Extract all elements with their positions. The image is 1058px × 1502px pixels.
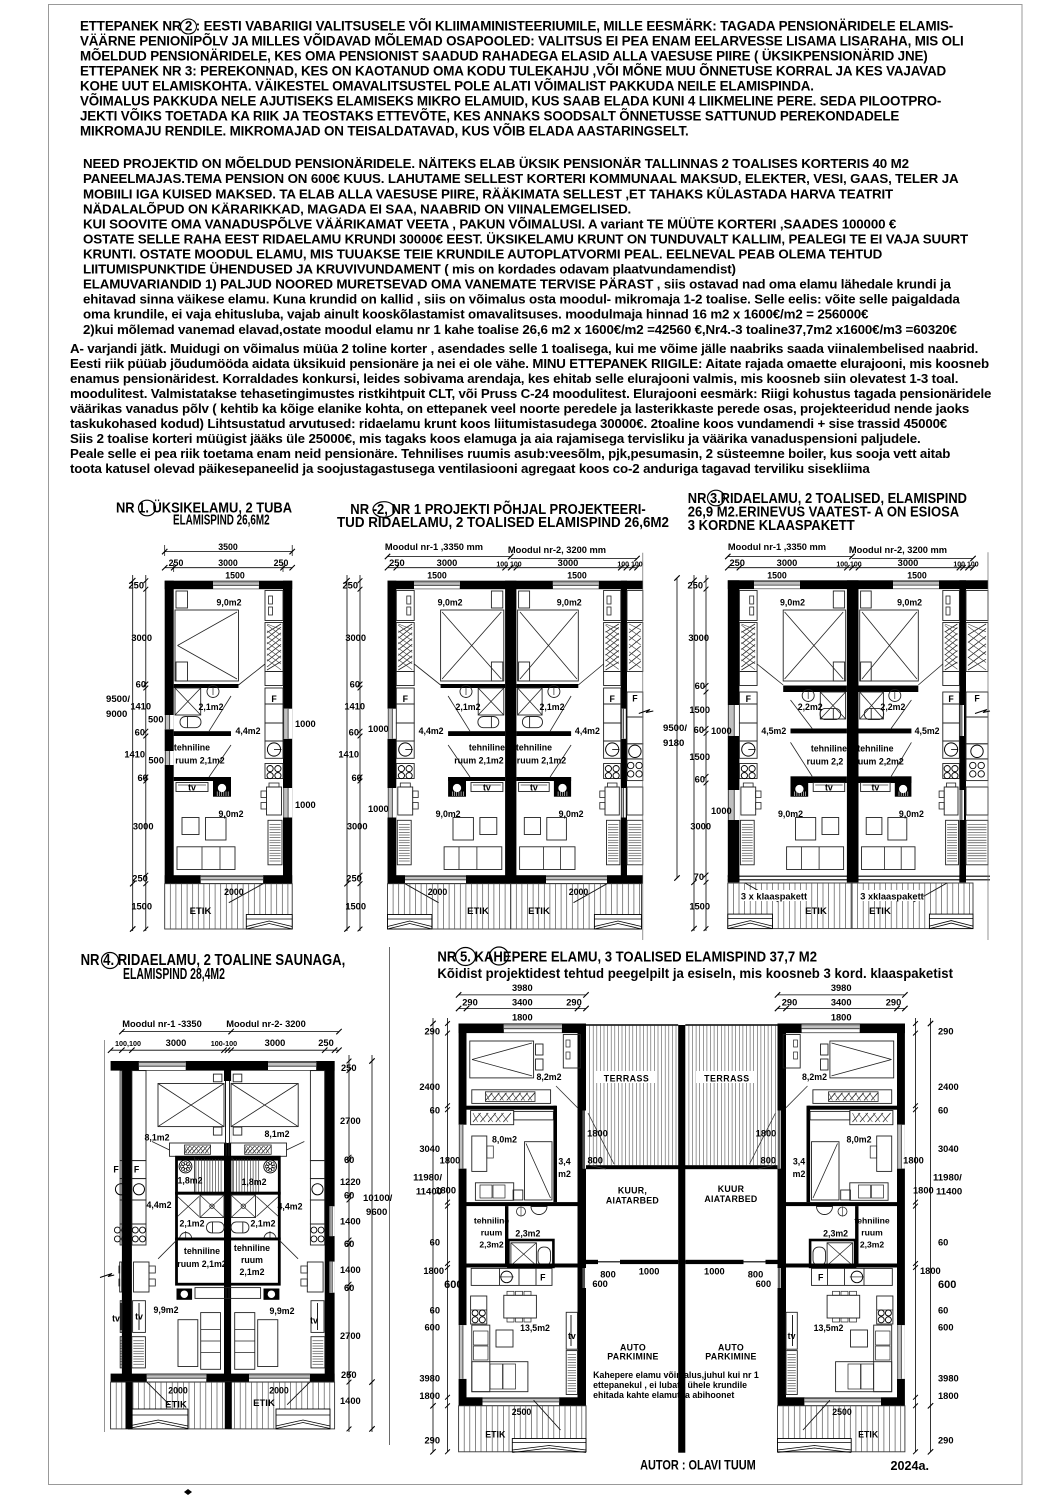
svg-text:1000: 1000 [639,1266,660,1276]
svg-text:1500: 1500 [767,570,787,580]
svg-text:100-100: 100-100 [211,1039,237,1048]
svg-text:3980: 3980 [831,983,852,993]
svg-text:1000: 1000 [368,804,389,814]
svg-text:8,2m2: 8,2m2 [802,1072,827,1082]
svg-text:ETTEPANEK NR 2 : EESTI VABARII: ETTEPANEK NR 2 : EESTI VABARIIGI VALITSU… [80,19,953,34]
svg-text:1410: 1410 [338,750,359,760]
svg-text:8,0m2: 8,0m2 [492,1135,517,1145]
svg-text:250: 250 [687,581,703,591]
svg-text:F: F [113,1164,119,1174]
svg-text:9500/: 9500/ [663,723,687,734]
svg-text:2,1m2: 2,1m2 [180,1219,205,1229]
svg-text:1400: 1400 [340,1265,361,1275]
svg-text:1500: 1500 [567,570,587,580]
svg-text:KRUNTI. OSTATE MOODUL ELAMU,: KRUNTI. OSTATE MOODUL ELAMU, MIS TUUAKSE… [83,247,883,262]
svg-text:2,3m2: 2,3m2 [515,1229,540,1239]
svg-text:600: 600 [444,1279,462,1291]
svg-text:500: 500 [148,756,164,766]
svg-text:Eesti riik püüab jõudumööda ai: Eesti riik püüab jõudumööda aidata üksik… [70,356,989,371]
svg-text:1410: 1410 [344,702,365,712]
svg-text:Moodul nr-1 ,3350 mm: Moodul nr-1 ,3350 mm [385,542,483,552]
svg-text:PARKIMINE: PARKIMINE [705,1352,756,1362]
svg-text:TERRASS: TERRASS [704,1074,750,1084]
svg-text:13,5m2: 13,5m2 [814,1323,844,1333]
svg-text:NÄDALALÕPUD ON KÄRARIKKAD, MAG: NÄDALALÕPUD ON KÄRARIKKAD, MAGADA EI SAA… [83,201,631,216]
svg-text:250: 250 [346,874,362,884]
svg-text:4,4m2: 4,4m2 [236,726,261,736]
svg-text:1000: 1000 [368,724,389,734]
svg-text:250: 250 [341,1370,357,1380]
svg-text:3400: 3400 [831,997,852,1007]
svg-text:1500: 1500 [689,902,710,912]
svg-text:F: F [134,1164,140,1174]
svg-text:4,4m2: 4,4m2 [147,1200,172,1210]
svg-text:MÕELDUD PENSIONÄRIDELE, KES OM: MÕELDUD PENSIONÄRIDELE, KES OMA PENSIONI… [80,49,928,64]
svg-text:tv: tv [568,1331,576,1341]
svg-text:2,1m2: 2,1m2 [540,702,565,712]
svg-text:2,1m2: 2,1m2 [456,702,481,712]
svg-text:tv: tv [188,783,196,793]
svg-text:m2: m2 [558,1169,571,1179]
svg-text:TERRASS: TERRASS [604,1074,650,1084]
svg-text:1000: 1000 [295,800,316,810]
svg-text:3,4: 3,4 [558,1157,570,1167]
svg-text:600: 600 [756,1279,772,1289]
svg-text:8,0m2: 8,0m2 [847,1135,872,1145]
svg-text:10100/: 10100/ [363,1193,393,1204]
svg-text:8,1m2: 8,1m2 [145,1132,170,1142]
svg-text:1400: 1400 [340,1396,361,1406]
svg-text:2000: 2000 [428,887,448,897]
svg-text:9,9m2: 9,9m2 [154,1305,179,1315]
svg-text:3 xklaaspakett: 3 xklaaspakett [860,892,924,902]
svg-text:2500: 2500 [832,1407,852,1417]
svg-text:500: 500 [148,715,164,725]
svg-text:m2: m2 [793,1169,806,1179]
svg-text:800: 800 [761,1155,777,1165]
svg-text:3000: 3000 [688,633,709,643]
svg-text:3980: 3980 [938,1374,959,1384]
svg-text:tv: tv [871,783,879,793]
svg-text:11980/: 11980/ [413,1172,442,1183]
svg-text:250: 250 [318,1038,334,1048]
svg-text:60: 60 [351,773,361,783]
svg-text:Kõidist projektidest tehtud pe: Kõidist projektidest tehtud peegelpilt j… [437,966,953,982]
svg-text:1800: 1800 [419,1391,440,1401]
svg-text:3980: 3980 [419,1374,440,1384]
svg-text:250: 250 [169,558,184,568]
svg-text:60: 60 [344,1283,354,1293]
svg-text:ELAMISPIND 26,6M2: ELAMISPIND 26,6M2 [173,511,270,528]
svg-text:60: 60 [135,728,145,738]
svg-text:2,3m2: 2,3m2 [823,1229,848,1239]
svg-text:250: 250 [341,1063,357,1073]
svg-text:ruum 2,1m2: ruum 2,1m2 [517,756,566,766]
svg-text:tehniline: tehniline [469,743,505,753]
svg-text:KUUR: KUUR [718,1184,745,1194]
svg-text:1800: 1800 [440,1155,461,1165]
svg-text:1500: 1500 [345,902,366,912]
svg-text:3000: 3000 [777,558,798,568]
svg-text:AIATARBED: AIATARBED [704,1194,757,1204]
svg-text:4,4m2: 4,4m2 [419,726,444,736]
svg-text:1800: 1800 [587,1129,608,1139]
svg-text:F: F [948,694,954,704]
svg-text:ruum: ruum [861,1227,883,1237]
svg-text:60: 60 [695,775,705,785]
svg-text:60: 60 [344,1155,354,1165]
svg-text:3000: 3000 [347,822,368,832]
svg-text:4,4m2: 4,4m2 [278,1202,303,1212]
svg-text:2,1m2: 2,1m2 [251,1219,276,1229]
svg-text:3000: 3000 [218,558,238,568]
svg-text:1,8m2: 1,8m2 [178,1176,203,1186]
svg-text:F: F [632,694,638,704]
svg-text:tehniline: tehniline [811,744,847,754]
svg-text:1800: 1800 [423,1266,444,1276]
svg-text:taskukohased kodud) Lihtsustat: taskukohased kodud) Lihtsustatud arvutus… [70,416,948,431]
svg-text:tehniline: tehniline [474,1215,510,1225]
svg-text:JEKTI VÕIKS TOETADA KA RIIK JA: JEKTI VÕIKS TOETADA KA RIIK JA TEOSTAKS … [80,109,899,124]
svg-text:4,5m2: 4,5m2 [915,726,940,736]
svg-text:Siis 2 toalise korteri müügist: Siis 2 toalise korteri müügist jääks üle… [70,431,921,446]
svg-text:3000: 3000 [133,822,154,832]
svg-text:ETIK: ETIK [165,1400,187,1411]
svg-text:Moodul nr-2, 3200 mm: Moodul nr-2, 3200 mm [849,545,947,555]
svg-text:60: 60 [695,681,705,691]
svg-text:100 100: 100 100 [496,562,521,569]
svg-text:1000: 1000 [295,719,316,729]
svg-text:290: 290 [424,1436,440,1446]
svg-text:2,2m2: 2,2m2 [798,702,823,712]
svg-text:250: 250 [342,581,358,591]
svg-text:800: 800 [587,1155,603,1165]
svg-text:290: 290 [938,1027,954,1037]
svg-text:ETIK: ETIK [869,906,891,917]
svg-text:1410: 1410 [124,750,145,760]
svg-text:290: 290 [462,997,478,1007]
svg-text:KUI SOOVITE OMA VANADUSPÕLVE: KUI SOOVITE OMA VANADUSPÕLVE VÄÄRIKAMAT … [83,216,897,231]
svg-text:9,0m2: 9,0m2 [778,809,803,819]
svg-text:MOBIILI IGA KUISED MAKSED. TA: MOBIILI IGA KUISED MAKSED. TA ELAB ALLA … [83,186,893,201]
svg-text:4,5m2: 4,5m2 [761,726,786,736]
svg-text:13,5m2: 13,5m2 [520,1323,550,1333]
svg-text:moodulitest. Valmistatakse teh: moodulitest. Valmistatakse tehasetingimu… [70,386,991,401]
svg-text:ETIK: ETIK [485,1430,506,1440]
svg-text:KOHE UUT ELAMISKOHTA. VÄIKESTE: KOHE UUT ELAMISKOHTA. VÄIKESTEL OMAVALIT… [80,79,814,94]
svg-text:tehniline: tehniline [854,1215,890,1225]
svg-text:8,1m2: 8,1m2 [265,1129,290,1139]
svg-text:ETIK: ETIK [858,1430,879,1440]
svg-text:väärikas vanadus põlv ( kehtib: väärikas vanadus põlv ( kehtib ka kõige … [70,401,969,416]
svg-text:9,9m2: 9,9m2 [270,1306,295,1316]
svg-text:2000: 2000 [569,887,589,897]
svg-text:1800: 1800 [938,1391,959,1401]
svg-text:60: 60 [344,1191,354,1201]
svg-text:60: 60 [430,1238,440,1248]
svg-text:9,0m2: 9,0m2 [780,598,805,608]
svg-text:60: 60 [938,1306,948,1316]
svg-text:3040: 3040 [938,1144,959,1154]
svg-text:60: 60 [430,1106,440,1116]
svg-text:9600: 9600 [366,1207,387,1218]
svg-text:3 KORDNE KLAASPAKETT: 3 KORDNE KLAASPAKETT [688,517,856,534]
svg-text:ruum 2,2: ruum 2,2 [807,757,844,767]
svg-text:Moodul nr-2, 3200 mm: Moodul nr-2, 3200 mm [508,545,606,555]
svg-text:60: 60 [136,680,146,690]
svg-text:Kahepere elamu võimalus,juhul: Kahepere elamu võimalus,juhul kui nr 1 [593,1370,759,1380]
svg-text:3000: 3000 [898,558,919,568]
svg-text:ruum 2,1m2: ruum 2,1m2 [177,1259,226,1269]
svg-text:F: F [974,694,980,704]
svg-text:2400: 2400 [938,1082,959,1092]
svg-text:tehniline: tehniline [516,743,552,753]
svg-text:ruum 2,2m2: ruum 2,2m2 [854,757,903,767]
svg-text:ehitada kahte elamut ja abihoo: ehitada kahte elamut ja abihoonet [593,1390,734,1400]
svg-text:600: 600 [938,1323,954,1333]
svg-text:3 x klaaspakett: 3 x klaaspakett [741,892,807,902]
svg-text:F: F [610,694,616,704]
svg-text:1800: 1800 [903,1155,924,1165]
svg-text:oma krundile, ei vaja ehituslu: oma krundile, ei vaja ehitusluba, vajab … [83,307,869,322]
svg-text:A- varjandi jätk. Muidugi on v: A- varjandi jätk. Muidugi on võimalus mü… [70,341,978,356]
svg-text:F: F [271,694,277,704]
svg-text:600: 600 [592,1279,608,1289]
svg-text:tv: tv [310,1316,318,1326]
svg-text:60: 60 [694,725,704,735]
svg-text:ELAMUVARIANDID 1) PALJUD NO: ELAMUVARIANDID 1) PALJUD NOORED MURETSEV… [83,277,952,292]
svg-text:3400: 3400 [512,997,533,1007]
svg-text:AIATARBED: AIATARBED [606,1196,659,1206]
svg-text:11400: 11400 [936,1186,962,1197]
svg-text:tv: tv [135,1312,143,1322]
svg-text:F: F [746,694,752,704]
svg-text:800: 800 [748,1269,764,1279]
svg-text:60: 60 [349,728,359,738]
svg-text:1220: 1220 [340,1177,361,1187]
svg-text:60: 60 [137,773,147,783]
svg-text:1410: 1410 [130,702,151,712]
svg-text:250: 250 [128,581,144,591]
svg-text:ruum 2,1m2: ruum 2,1m2 [454,756,503,766]
svg-text:70: 70 [694,872,704,882]
svg-text:tv: tv [530,783,538,793]
svg-text:60: 60 [430,1306,440,1316]
svg-text:tehniline: tehniline [174,743,210,753]
svg-text:8,2m2: 8,2m2 [537,1072,562,1082]
svg-text:ettepanekul , ei lubata ühele: ettepanekul , ei lubata ühele krundile [593,1380,747,1390]
svg-text:2500: 2500 [512,1407,532,1417]
svg-text:2400: 2400 [419,1082,440,1092]
svg-text:290: 290 [782,997,798,1007]
svg-text:9,0m2: 9,0m2 [899,809,924,819]
svg-text:3,4: 3,4 [793,1157,805,1167]
svg-text:1000: 1000 [711,726,732,736]
svg-text:1,8m2: 1,8m2 [242,1177,267,1187]
svg-text:9500/: 9500/ [106,694,130,705]
svg-text:2,2m2: 2,2m2 [880,702,905,712]
svg-text:PARKIMINE: PARKIMINE [607,1352,658,1362]
svg-text:Moodul nr-2- 3200: Moodul nr-2- 3200 [226,1019,306,1029]
svg-text:250: 250 [132,874,148,884]
svg-text:1500: 1500 [907,570,927,580]
svg-text:9,0m2: 9,0m2 [557,598,582,608]
svg-text:Peale selle ei pea riik toetam: Peale selle ei pea riik toetama enam nei… [70,446,950,461]
svg-text:3980: 3980 [512,983,533,993]
svg-text:tv: tv [788,1331,796,1341]
svg-text:3000: 3000 [690,822,711,832]
svg-text:tehniline: tehniline [234,1243,270,1253]
svg-text:800: 800 [600,1269,616,1279]
svg-text:1000: 1000 [711,806,732,816]
svg-text:ETTEPANEK NR 3: PEREKONNAD, KE: ETTEPANEK NR 3: PEREKONNAD, KES ON KAOTA… [80,64,947,79]
svg-text:1800: 1800 [920,1266,941,1276]
svg-text:100 100: 100 100 [617,562,642,569]
svg-text:2700: 2700 [340,1116,361,1126]
svg-text:3000: 3000 [131,633,152,643]
svg-text:ETIK: ETIK [253,1398,275,1409]
svg-text:3000: 3000 [345,633,366,643]
svg-text:3000: 3000 [437,558,458,568]
svg-text:ETIK: ETIK [805,906,827,917]
svg-text:ETIK: ETIK [528,906,550,917]
svg-text:250: 250 [274,558,289,568]
svg-text:9180: 9180 [663,738,684,749]
svg-text:100 100: 100 100 [836,562,861,569]
svg-text:2)kui mõlemad vanemad elavad,o: 2)kui mõlemad vanemad elavad,ostate mood… [83,322,958,337]
svg-text:9,0m2: 9,0m2 [438,598,463,608]
svg-text:AUTOR : OLAVI TUUM: AUTOR : OLAVI TUUM [640,1457,756,1473]
svg-text:1000: 1000 [704,1266,725,1276]
svg-text:3000: 3000 [166,1038,187,1048]
svg-text:1500: 1500 [689,705,710,715]
svg-text:100,100: 100,100 [115,1039,141,1048]
svg-text:9,0m2: 9,0m2 [559,809,584,819]
svg-text:9000: 9000 [106,709,127,720]
svg-text:2,1m2: 2,1m2 [199,702,224,712]
svg-text:1500: 1500 [225,570,245,580]
svg-text:600: 600 [424,1323,440,1333]
svg-text:LIITUMISPUNKTIDE ÜHENDUSED JA: LIITUMISPUNKTIDE ÜHENDUSED JA KRUVIVUNDA… [83,262,736,277]
svg-text:PANEELMAJAS.TEMA PENSION ON 60: PANEELMAJAS.TEMA PENSION ON 600€ KUUS. L… [83,171,959,186]
svg-text:1500: 1500 [131,902,152,912]
svg-text:2,1m2: 2,1m2 [240,1267,265,1277]
svg-text:ruum: ruum [481,1227,503,1237]
svg-text:1500: 1500 [689,752,710,762]
svg-text:VÄÄRNE PENIONIPÕLV JA MILLES V: VÄÄRNE PENIONIPÕLV JA MILLES VÕIDAVAD MÕ… [80,34,964,49]
svg-text:3500: 3500 [218,542,238,552]
svg-text:2700: 2700 [340,1331,361,1341]
svg-text:ehitavad sinna väikese elamu.: ehitavad sinna väikese elamu. Kuna krund… [83,292,960,307]
svg-text:2000: 2000 [168,1385,188,1395]
svg-text:ELAMISPIND 28,4M2: ELAMISPIND 28,4M2 [123,966,225,983]
svg-text:250: 250 [389,558,405,568]
svg-text:NEED PROJEKTID ON MÕELDUD PENS: NEED PROJEKTID ON MÕELDUD PENSIONÄRIDELE… [83,156,909,171]
svg-text:3000: 3000 [265,1038,286,1048]
svg-text:1800: 1800 [756,1129,777,1139]
svg-text:toota katusel olevad päikesepa: toota katusel olevad päikesepaneelid ja … [70,461,870,476]
svg-text:tehniline: tehniline [184,1246,220,1256]
svg-text:4,4m2: 4,4m2 [575,726,600,736]
svg-text:3040: 3040 [419,1144,440,1154]
svg-text:2024a.: 2024a. [891,1459,930,1473]
svg-text:F: F [540,1272,546,1282]
svg-text:9,0m2: 9,0m2 [219,809,244,819]
svg-text:600: 600 [938,1279,956,1291]
svg-text:1400: 1400 [340,1217,361,1227]
svg-text:1500: 1500 [427,570,447,580]
svg-text:60: 60 [350,680,360,690]
svg-text:250: 250 [729,558,745,568]
svg-text:2,3m2: 2,3m2 [479,1239,504,1249]
svg-text:ruum 2,1m2: ruum 2,1m2 [175,756,224,766]
svg-text:60: 60 [938,1106,948,1116]
svg-text:VÕIMALUS PAKKUDA NELE AJUTISEK: VÕIMALUS PAKKUDA NELE AJUTISEKS ELAMISEK… [80,94,941,109]
svg-text:tv: tv [112,1314,120,1324]
svg-text:9,0m2: 9,0m2 [436,809,461,819]
svg-text:ETIK: ETIK [190,906,212,917]
svg-text:60: 60 [938,1238,948,1248]
svg-text:MIKROMAJU RENDILE. MIKROMAJAD: MIKROMAJU RENDILE. MIKROMAJAD ON TEISALD… [80,124,689,139]
svg-text:100 100: 100 100 [953,562,978,569]
svg-text:9,0m2: 9,0m2 [217,598,242,608]
svg-text:F: F [403,694,409,704]
svg-text:1800: 1800 [831,1013,852,1023]
svg-text:tv: tv [483,783,491,793]
svg-text:KUUR,: KUUR, [618,1186,647,1196]
svg-text:Moodul nr-1 -3350: Moodul nr-1 -3350 [122,1019,202,1029]
svg-text:enamus pensionäridest. Korrald: enamus pensionäridest. Korraldades konku… [70,371,958,386]
svg-text:OSTATE SELLE RAHA EEST RIDAEL: OSTATE SELLE RAHA EEST RIDAELAMU KRUNDI … [83,231,968,246]
svg-text:1800: 1800 [512,1013,533,1023]
svg-text:F: F [818,1272,824,1282]
svg-text:9,0m2: 9,0m2 [897,598,922,608]
svg-text:290: 290 [938,1436,954,1446]
svg-text:tehniline: tehniline [857,744,893,754]
svg-text:60: 60 [344,1239,354,1249]
svg-text:ruum: ruum [241,1255,263,1265]
svg-text:11980/: 11980/ [933,1172,962,1183]
svg-text:Moodul nr-1 ,3350 mm: Moodul nr-1 ,3350 mm [728,542,826,552]
svg-text:290: 290 [424,1027,440,1037]
svg-text:ETIK: ETIK [467,906,489,917]
svg-text:1800: 1800 [913,1185,934,1195]
svg-text:2000: 2000 [224,887,244,897]
svg-text:tv: tv [825,783,833,793]
svg-text:11400: 11400 [416,1186,442,1197]
svg-text:2,3m2: 2,3m2 [860,1239,885,1249]
svg-text:2000: 2000 [269,1385,289,1395]
svg-text:NR 5. KAHEPERE ELAMU, 3 TOALIS: NR 5. KAHEPERE ELAMU, 3 TOALISED ELAMISP… [437,949,817,966]
svg-text:3000: 3000 [558,558,579,568]
